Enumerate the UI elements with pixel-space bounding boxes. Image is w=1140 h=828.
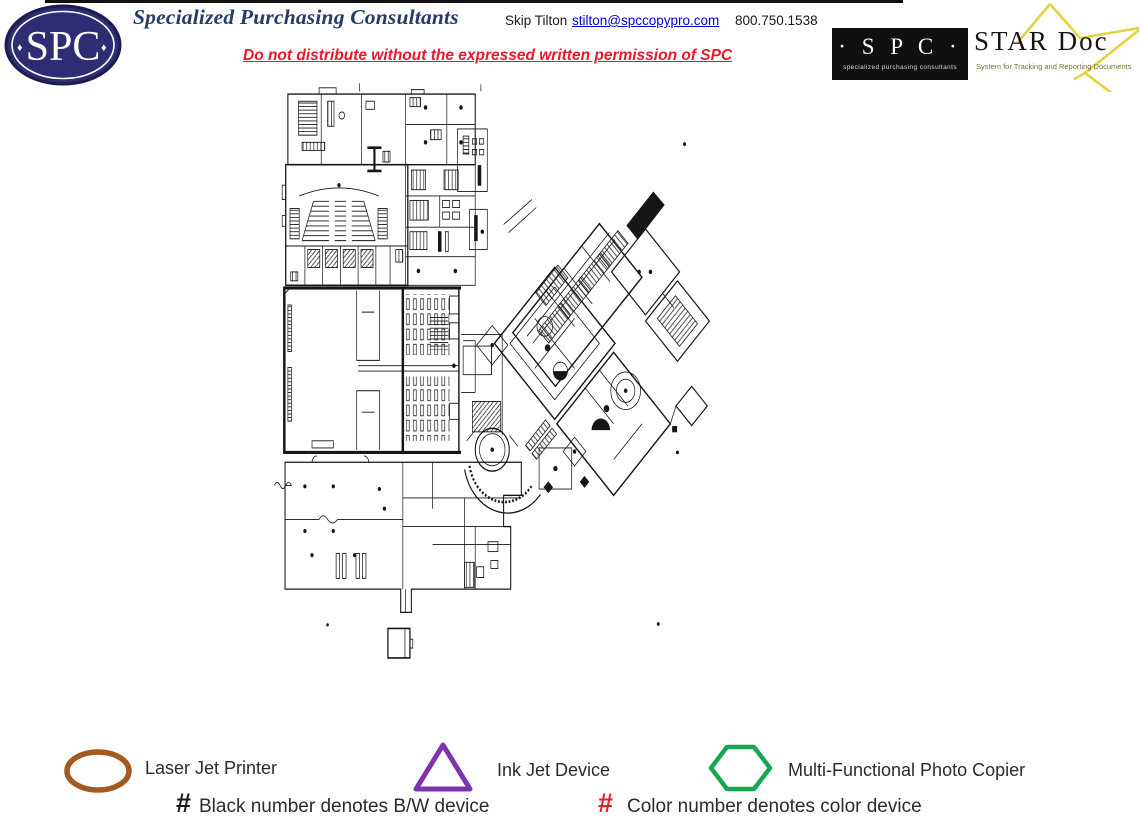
upper-diagonal-wing	[513, 191, 710, 386]
star-doc-spc-sublabel: specialized purchasing consultants	[832, 64, 968, 71]
survey-ticks	[360, 83, 481, 91]
color-hash-icon: #	[598, 793, 613, 813]
page: SPC ♦ ♦ Specialized Purchasing Consultan…	[0, 0, 1140, 828]
spc-logo: SPC ♦ ♦	[3, 3, 123, 87]
top-rule	[45, 0, 903, 3]
diamond-icon-right: ♦	[101, 42, 107, 54]
star-doc-spc-label: · S P C ·	[832, 28, 968, 66]
cafeteria	[403, 288, 461, 452]
shop-building	[274, 456, 521, 612]
legend-note-bw: Black number denotes B/W device	[199, 796, 489, 818]
contact-email-link[interactable]: stilton@spccopypro.com	[572, 13, 719, 28]
legend-label-ink-jet: Ink Jet Device	[497, 760, 610, 781]
music-rooms	[406, 165, 488, 286]
photo-copier-icon	[706, 743, 774, 793]
diamond-icon-left: ♦	[17, 42, 23, 54]
star-doc-spc-box: · S P C · specialized purchasing consult…	[832, 28, 968, 80]
auditorium	[282, 165, 408, 286]
legend-label-photo-copier: Multi-Functional Photo Copier	[788, 760, 1025, 781]
contact-name: Skip Tilton	[505, 13, 567, 28]
detached-outbuilding	[388, 628, 413, 657]
lower-diagonal-wing	[525, 352, 707, 495]
ink-jet-device-icon	[412, 740, 474, 794]
roof-bar	[626, 191, 664, 239]
page-title: Specialized Purchasing Consultants	[133, 5, 459, 30]
spc-logo-text: SPC	[26, 24, 101, 70]
star-doc-name: STAR Doc	[974, 26, 1109, 57]
legend-label-laser-jet: Laser Jet Printer	[145, 758, 277, 779]
star-doc-tagline: System for Tracking and Reporting Docume…	[976, 62, 1132, 71]
distribution-warning: Do not distribute without the expressed …	[243, 47, 732, 65]
bw-hash-icon: #	[176, 793, 191, 813]
laser-jet-printer-icon	[63, 748, 133, 794]
floor-plan	[268, 78, 923, 733]
dark-semicircle-room	[592, 418, 610, 430]
contact-phone: 800.750.1538	[735, 13, 818, 28]
legend-note-color: Color number denotes color device	[627, 796, 922, 818]
